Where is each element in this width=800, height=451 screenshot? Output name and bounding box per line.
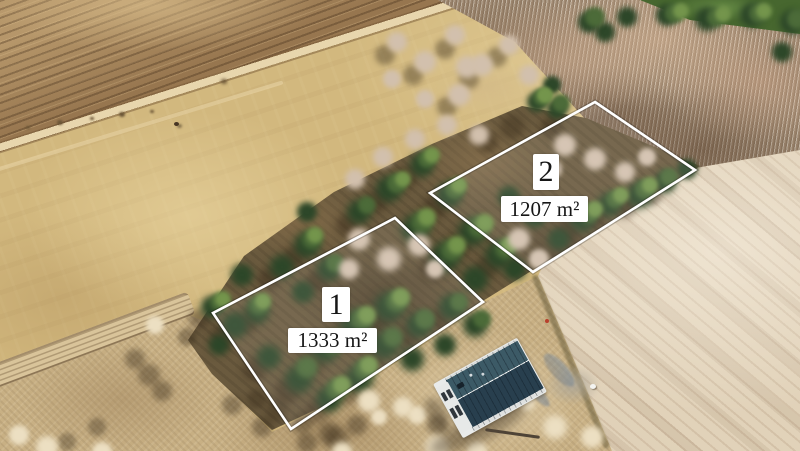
plot-2-number-label: 2 [533, 154, 559, 190]
plot-boundaries-overlay [0, 0, 800, 451]
plot-1-area-label: 1333 m² [288, 328, 377, 353]
plot-1-number-label: 1 [322, 287, 350, 322]
plot-2-boundary [430, 102, 695, 272]
plot-1-boundary [213, 218, 483, 429]
plot-2-area-label: 1207 m² [501, 196, 588, 222]
aerial-photo: 1 1333 m² 2 1207 m² [0, 0, 800, 451]
